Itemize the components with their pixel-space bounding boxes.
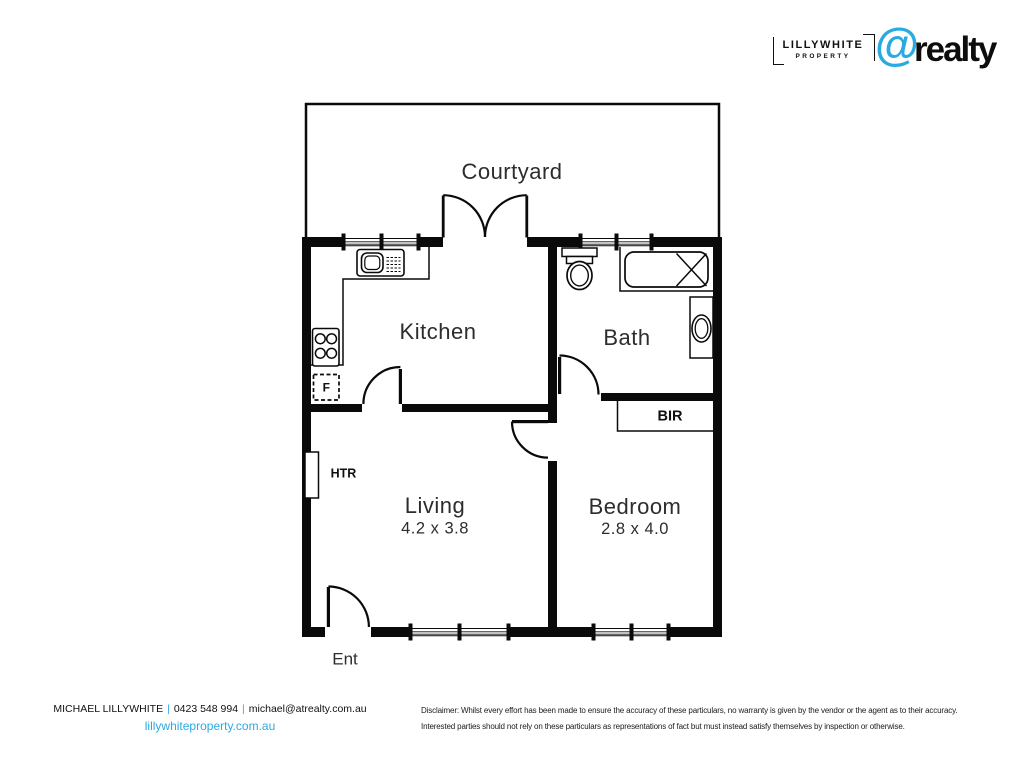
kitchen-label: Kitchen bbox=[400, 319, 477, 344]
wall-central-lower bbox=[548, 461, 557, 627]
disclaimer-line-2: Interested parties should not rely on th… bbox=[421, 719, 1001, 735]
wall-right bbox=[713, 237, 722, 637]
agent-email[interactable]: michael@atrealty.com.au bbox=[249, 703, 367, 715]
bedroom-window bbox=[592, 624, 671, 641]
vanity-basin bbox=[690, 297, 713, 358]
fridge: F bbox=[314, 375, 340, 401]
disclaimer-text: Disclaimer: Whilst every effort has been… bbox=[421, 703, 1001, 734]
wall-left bbox=[302, 237, 311, 637]
bedroom-door bbox=[512, 420, 548, 458]
living-dimensions: 4.2 x 3.8 bbox=[401, 520, 469, 538]
cooktop bbox=[313, 329, 340, 367]
agent-contact-block: MICHAEL LILLYWHITE|0423 548 994|michael@… bbox=[50, 703, 370, 733]
living-label: Living bbox=[405, 493, 465, 518]
separator: | bbox=[238, 703, 249, 715]
wall-kitchen-left bbox=[311, 404, 362, 412]
living-window bbox=[409, 624, 511, 641]
heater-label: HTR bbox=[331, 467, 357, 481]
entry-door bbox=[325, 587, 371, 638]
disclaimer-line-1: Disclaimer: Whilst every effort has been… bbox=[421, 703, 1001, 719]
bedroom-label: Bedroom bbox=[589, 494, 682, 519]
bathtub bbox=[620, 247, 713, 291]
bath-label: Bath bbox=[603, 325, 650, 350]
kitchen-sink bbox=[357, 250, 404, 277]
courtyard-french-doors bbox=[442, 195, 528, 247]
courtyard-label: Courtyard bbox=[461, 159, 562, 184]
toilet bbox=[562, 248, 597, 290]
entry-label: Ent bbox=[332, 650, 358, 669]
wall-central-upper bbox=[548, 247, 557, 423]
agent-name: MICHAEL LILLYWHITE bbox=[53, 703, 163, 715]
flyer-page: LILLYWHITE PROPERTY @ realty bbox=[0, 0, 1024, 768]
robe-label: BIR bbox=[658, 409, 684, 425]
wall-bath-bottom bbox=[601, 393, 713, 401]
agent-contact-line: MICHAEL LILLYWHITE|0423 548 994|michael@… bbox=[50, 703, 370, 715]
fridge-label: F bbox=[323, 381, 330, 395]
agent-phone[interactable]: 0423 548 994 bbox=[174, 703, 238, 715]
kitchen-door bbox=[363, 367, 402, 404]
kitchen-window bbox=[342, 234, 421, 251]
bedroom-dimensions: 2.8 x 4.0 bbox=[601, 520, 669, 538]
separator: | bbox=[163, 703, 174, 715]
agent-website-link[interactable]: lillywhiteproperty.com.au bbox=[50, 719, 370, 733]
bath-door bbox=[558, 356, 599, 395]
wall-kitchen-right bbox=[402, 404, 548, 412]
heater-unit bbox=[305, 452, 319, 498]
floorplan-drawing: F Courtyard Kitchen Bath Living 4.2 x 3. bbox=[0, 0, 1024, 768]
